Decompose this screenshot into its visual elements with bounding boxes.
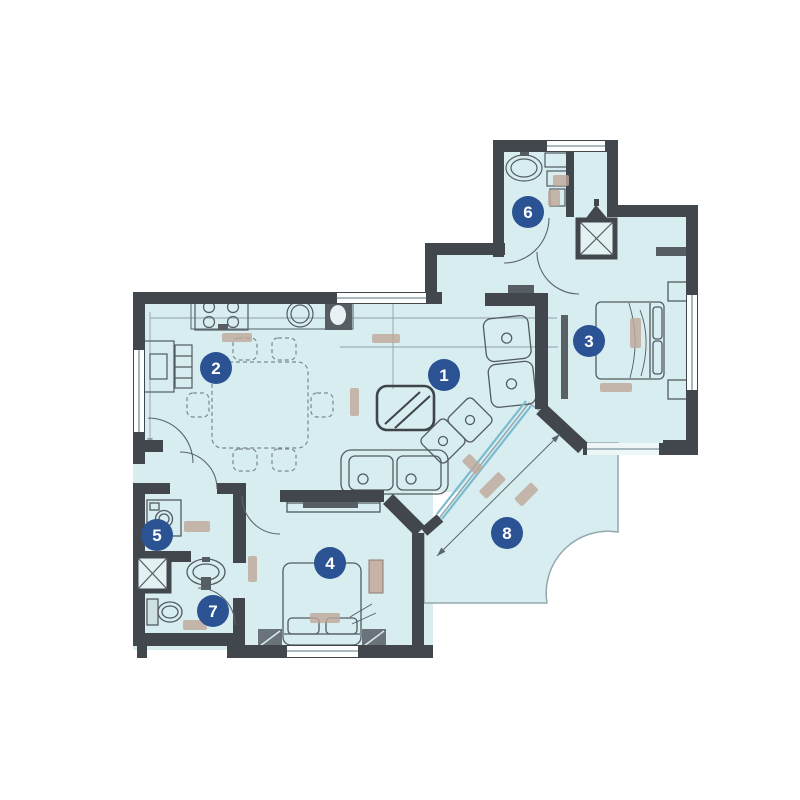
floor-plan-canvas: 1 2 3 4 5 6 7 8 <box>0 0 800 800</box>
room-marker-3[interactable]: 3 <box>573 325 605 357</box>
room-marker-1[interactable]: 1 <box>428 359 460 391</box>
shaft-x-icon <box>136 556 169 591</box>
room-marker-5[interactable]: 5 <box>141 519 173 551</box>
room-marker-8[interactable]: 8 <box>491 517 523 549</box>
window-icon <box>283 645 362 658</box>
floor-plan-drawing <box>0 0 800 800</box>
window-icon <box>547 141 605 151</box>
tv-icon <box>508 285 534 293</box>
window-icon <box>133 346 145 436</box>
kitchen-appliance-icon <box>325 300 352 330</box>
room-marker-4[interactable]: 4 <box>314 547 346 579</box>
window-icon <box>686 291 698 394</box>
room-marker-6[interactable]: 6 <box>512 196 544 228</box>
dresser-icon <box>369 560 383 593</box>
window-icon <box>583 443 663 455</box>
shaft-x-icon <box>578 220 615 257</box>
sliding-door-panel <box>561 315 568 399</box>
room-marker-7[interactable]: 7 <box>197 595 229 627</box>
room-marker-2[interactable]: 2 <box>200 352 232 384</box>
window-icon <box>333 292 430 304</box>
